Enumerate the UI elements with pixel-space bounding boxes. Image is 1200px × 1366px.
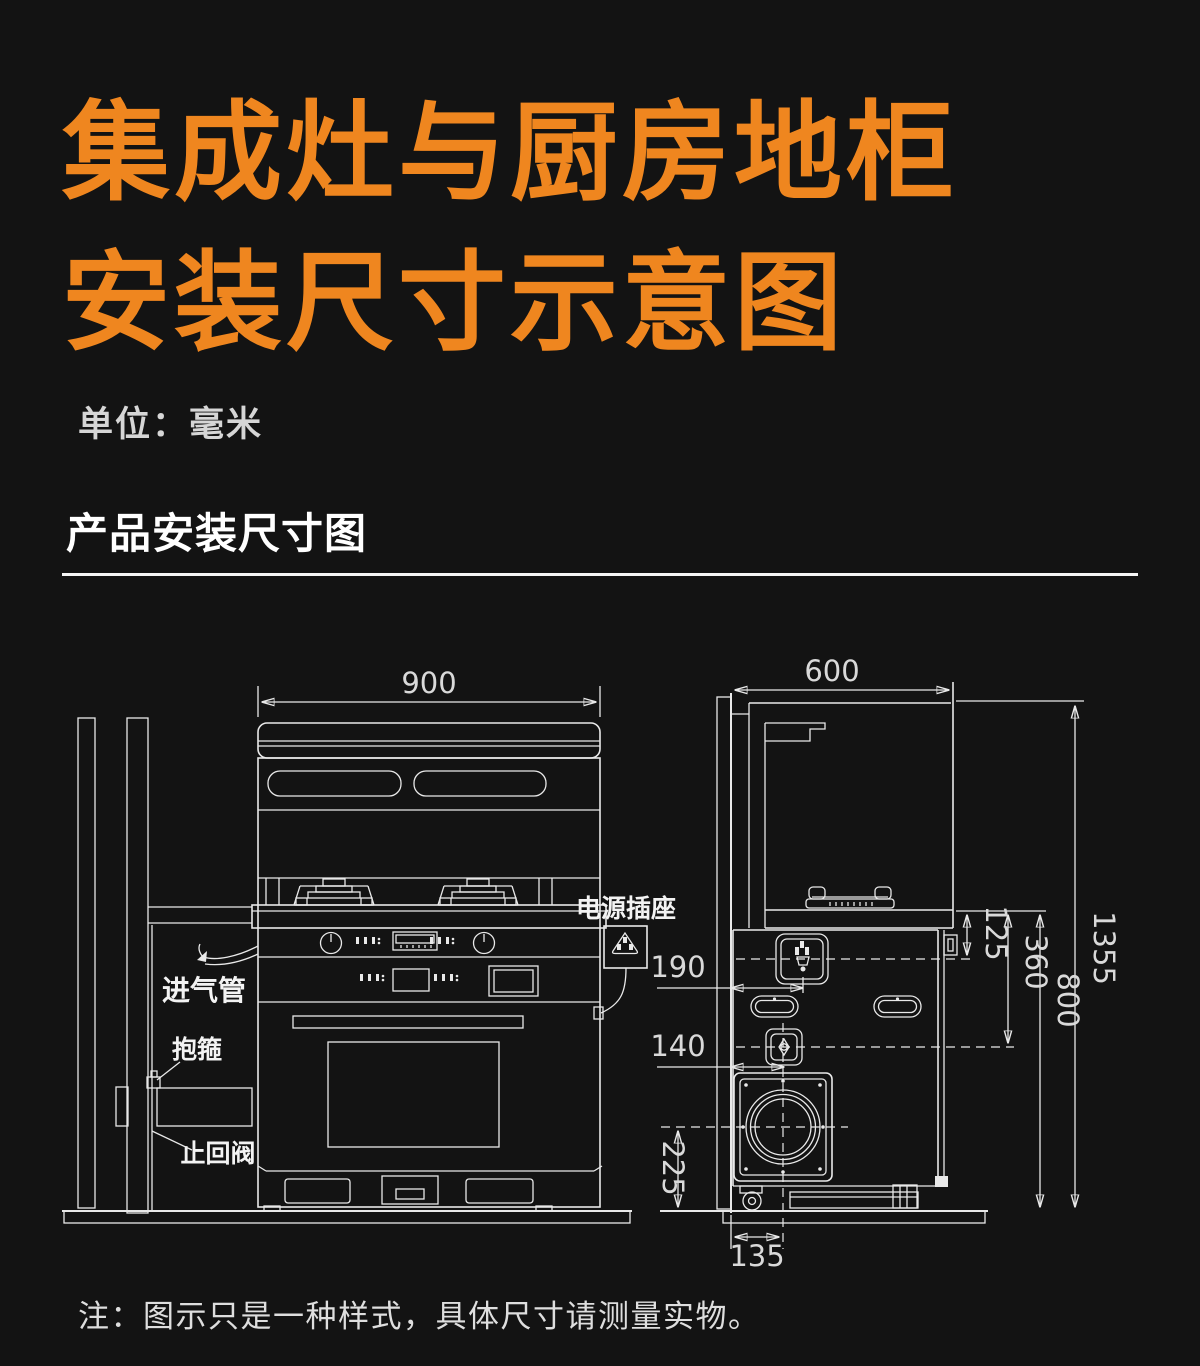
- section-divider: [62, 573, 1138, 576]
- plug-icon: [613, 933, 638, 954]
- front-view: [62, 718, 647, 1223]
- dim-inlet-below-counter: 360: [1019, 934, 1053, 989]
- check-valve-body: [116, 1087, 128, 1126]
- ground-side: [660, 1211, 988, 1223]
- page-title-line1: 集成灶与厨房地柜: [62, 78, 958, 228]
- rear-handle-left: [751, 996, 798, 1017]
- dim-outlet-from-wall: 135: [729, 1239, 784, 1273]
- unit-label: 单位：毫米: [78, 396, 263, 447]
- footnote: 注：图示只是一种样式，具体尺寸请测量实物。: [78, 1291, 761, 1336]
- page-title-line2: 安装尺寸示意图: [62, 228, 958, 378]
- power-socket: [594, 926, 647, 1019]
- clamp-leader-line: [157, 1062, 180, 1080]
- hood-profile: [731, 682, 953, 928]
- dim-depth: 600: [804, 654, 859, 688]
- power-cord: [601, 968, 626, 1013]
- stove-front: [252, 723, 606, 1211]
- flue-duct-columns: [78, 718, 252, 1213]
- side-control-box: [489, 966, 538, 996]
- dim-outlet-above-floor: 225: [656, 1140, 690, 1195]
- oven-door: [293, 1016, 523, 1147]
- gas-flow-arrow: [197, 944, 258, 965]
- rear-handle-right: [874, 996, 921, 1017]
- wall: [717, 693, 731, 1213]
- page-title: 集成灶与厨房地柜 安装尺寸示意图: [62, 78, 958, 378]
- diagram-labels: 900 600 1355 800 360 125 190 140 225 135…: [162, 654, 1121, 1273]
- control-knob-left: [321, 933, 342, 954]
- control-knob-right: [474, 933, 495, 954]
- intake-pipe-label: 进气管: [162, 974, 246, 1006]
- page: 集成灶与厨房地柜 安装尺寸示意图 单位：毫米 产品安装尺寸图: [0, 0, 1200, 1366]
- power-socket-label: 电源插座: [576, 894, 676, 923]
- gas-burner-left: [294, 879, 374, 905]
- dim-counter-height: 800: [1051, 972, 1085, 1027]
- dim-socket-from-wall: 190: [650, 950, 705, 984]
- mounting-bracket: [944, 935, 957, 955]
- dim-socket-below-counter: 125: [979, 905, 1013, 960]
- centerlines: [661, 959, 1014, 1249]
- check-valve-label: 止回阀: [180, 1140, 255, 1168]
- dim-inlet-from-wall: 140: [650, 1029, 705, 1063]
- burner-profile: [806, 887, 894, 908]
- dim-total-height: 1355: [1087, 911, 1121, 985]
- dim-front-width: 900: [401, 666, 456, 700]
- steam-display: [393, 969, 429, 991]
- clamp-label: 抱箍: [172, 1035, 222, 1064]
- gas-burner-right: [438, 879, 518, 905]
- kick-panel: [258, 1166, 602, 1211]
- installation-diagram: 900 600 1355 800 360 125 190 140 225 135…: [0, 630, 1200, 1290]
- section-title: 产品安装尺寸图: [66, 500, 367, 561]
- hood-vents: [268, 771, 546, 796]
